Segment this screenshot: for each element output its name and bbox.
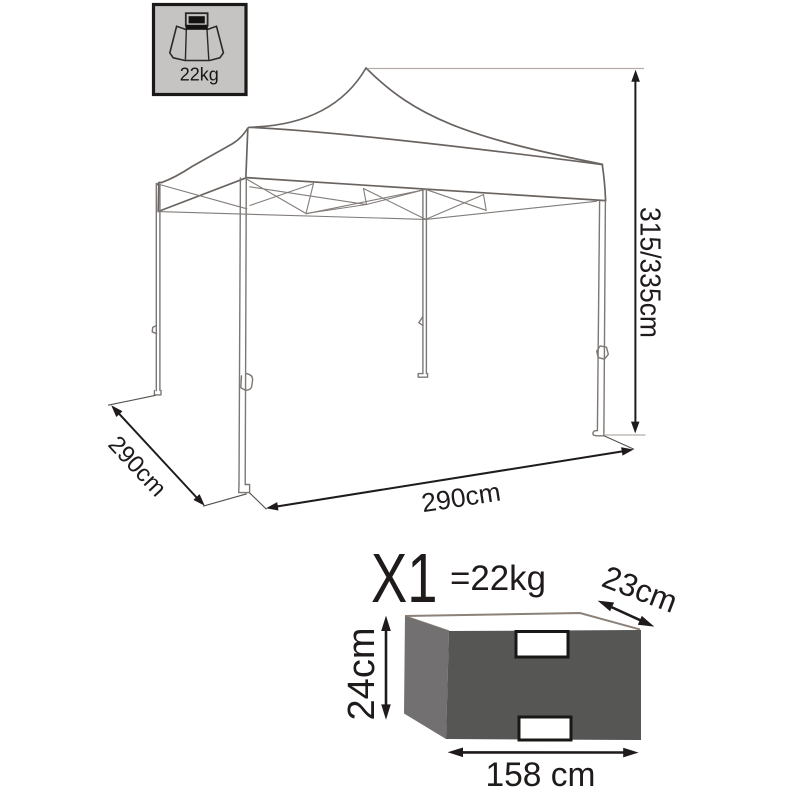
svg-text:24cm: 24cm: [341, 628, 383, 721]
svg-text:X1: X1: [371, 539, 438, 617]
svg-text:158 cm: 158 cm: [486, 756, 596, 794]
svg-text:22kg: 22kg: [180, 65, 219, 85]
svg-text:315/335cm: 315/335cm: [634, 207, 666, 338]
svg-text:=22kg: =22kg: [450, 558, 546, 598]
